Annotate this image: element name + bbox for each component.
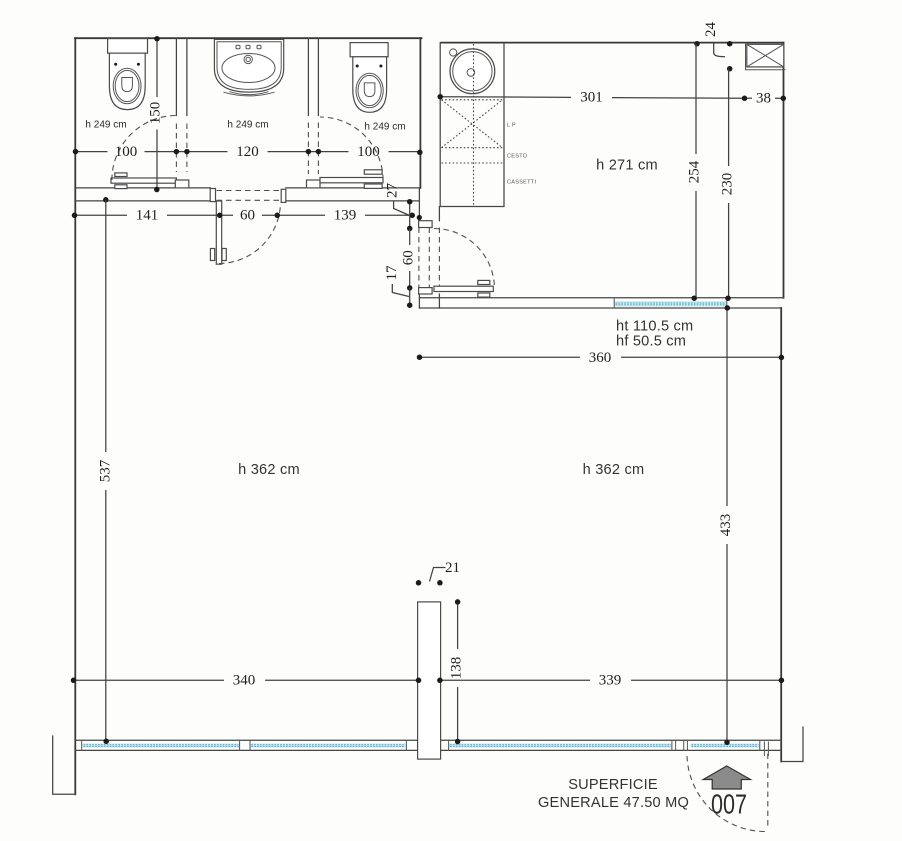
svg-text:138: 138 bbox=[449, 657, 465, 680]
svg-text:60: 60 bbox=[240, 208, 255, 224]
svg-text:L P: L P bbox=[507, 123, 516, 129]
svg-text:254: 254 bbox=[687, 160, 703, 183]
svg-text:150: 150 bbox=[148, 102, 164, 125]
svg-text:h 362 cm: h 362 cm bbox=[583, 462, 645, 478]
svg-text:21: 21 bbox=[445, 560, 460, 576]
svg-text:GENERALE 47.50 MQ: GENERALE 47.50 MQ bbox=[538, 795, 689, 811]
svg-text:h 249 cm: h 249 cm bbox=[364, 122, 405, 133]
svg-text:24: 24 bbox=[703, 22, 719, 38]
svg-text:230: 230 bbox=[720, 173, 736, 196]
svg-text:ht 110.5 cm: ht 110.5 cm bbox=[616, 319, 693, 335]
svg-text:60: 60 bbox=[401, 250, 417, 265]
svg-text:141: 141 bbox=[136, 208, 159, 224]
svg-text:h 249 cm: h 249 cm bbox=[227, 120, 268, 131]
svg-text:hf 50.5 cm: hf 50.5 cm bbox=[616, 334, 686, 350]
svg-text:100: 100 bbox=[357, 144, 380, 160]
svg-text:537: 537 bbox=[97, 459, 113, 482]
svg-text:h 271 cm: h 271 cm bbox=[596, 158, 658, 174]
svg-text:CESTO: CESTO bbox=[507, 154, 528, 160]
svg-text:17: 17 bbox=[384, 265, 400, 281]
svg-text:007: 007 bbox=[711, 789, 747, 820]
svg-text:27: 27 bbox=[385, 183, 401, 199]
svg-text:h 362 cm: h 362 cm bbox=[238, 462, 300, 478]
svg-text:100: 100 bbox=[115, 144, 138, 160]
svg-text:SUPERFICIE: SUPERFICIE bbox=[568, 777, 658, 793]
svg-text:120: 120 bbox=[236, 144, 259, 160]
svg-text:433: 433 bbox=[718, 514, 734, 537]
svg-text:360: 360 bbox=[589, 350, 612, 366]
svg-text:339: 339 bbox=[599, 673, 622, 689]
svg-text:h 249 cm: h 249 cm bbox=[85, 120, 126, 131]
svg-text:38: 38 bbox=[756, 91, 771, 107]
svg-text:139: 139 bbox=[334, 208, 357, 224]
svg-text:301: 301 bbox=[580, 90, 603, 106]
svg-text:340: 340 bbox=[233, 673, 256, 689]
svg-text:CASSETTI: CASSETTI bbox=[507, 180, 536, 186]
